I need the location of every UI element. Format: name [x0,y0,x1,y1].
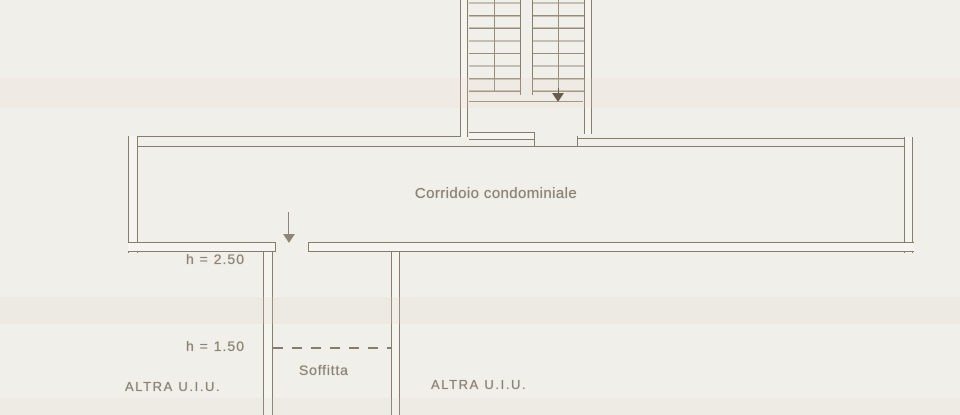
stair-divider-line-right [532,0,533,95]
adjacent-unit-left-label: ALTRA U.I.U. [125,379,221,394]
stair-landing-wall [469,132,535,140]
down-arrow-icon [552,93,564,102]
corridor-bottom-wall-right [308,242,914,253]
scan-artifact-band-middle [0,297,960,324]
corridor-arrow-stem [288,212,289,235]
corridor-top-wall-inner [138,146,904,147]
corridor-label: Corridoio condominiale [396,185,596,202]
stairwell-right-wall [584,0,592,134]
attic-right-wall [391,252,400,415]
floor-plan: Corridoio condominiale h = 2.50 h = 1.50… [0,0,960,415]
stair-flight-down [533,0,584,92]
corridor-top-wall-outer-left [128,136,460,137]
attic-label: Soffitta [299,362,349,378]
attic-height-upper-label: h = 2.50 [186,251,245,267]
corridor-top-wall-outer-right [577,138,913,139]
stair-landing-edge [469,101,584,102]
attic-left-wall [263,252,273,415]
corridor-right-wall [904,137,914,253]
stairwell-left-wall [460,0,468,137]
attic-height-lower-label: h = 1.50 [186,338,245,354]
down-arrow-icon [283,234,295,243]
attic-height-dashed-line [273,347,392,349]
scan-artifact-band-bottom [0,398,960,415]
stair-divider-line-left [520,0,521,95]
adjacent-unit-right-label: ALTRA U.I.U. [431,377,527,392]
stair-flight-up [469,0,520,92]
corridor-left-wall [128,136,138,253]
